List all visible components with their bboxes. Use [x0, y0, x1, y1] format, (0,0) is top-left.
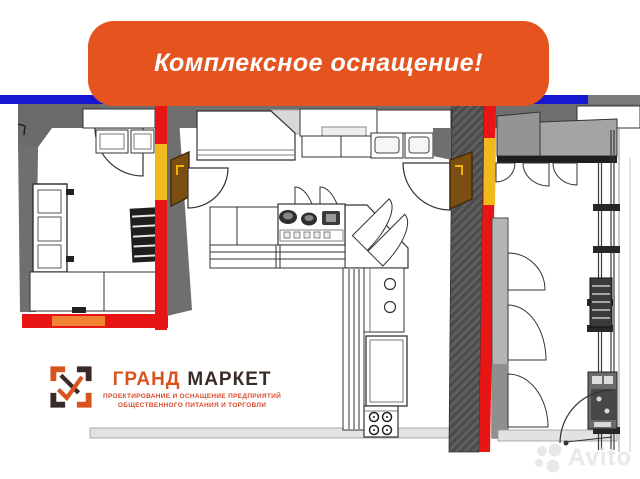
avito-logo-icon — [533, 441, 565, 475]
wall-counter — [83, 109, 155, 128]
wall-sinks — [371, 133, 433, 158]
ad-image: Комплексное оснащение! ГРАНДМАРКЕТ ПРОЕК… — [0, 0, 640, 479]
brand-word-1: ГРАНД — [113, 369, 181, 390]
shelf-door-arc — [508, 253, 545, 290]
wooden-door-left — [171, 152, 189, 206]
red-partition — [155, 104, 167, 330]
wooden-door-right — [450, 152, 472, 209]
brand-word-2: МАРКЕТ — [187, 369, 271, 390]
cabinet-door-arc — [496, 163, 515, 182]
door-arc-right — [403, 163, 450, 210]
display-cabinet — [33, 184, 74, 272]
shelf-rack — [130, 207, 160, 262]
counter-shelf-front — [210, 245, 345, 268]
four-burner-stove — [364, 406, 398, 437]
avito-watermark-text: Avito — [568, 444, 632, 472]
brand-tagline-line-1: ПРОЕКТИРОВАНИЕ И ОСНАЩЕНИЕ ПРЕДПРИЯТИЙ — [103, 393, 281, 402]
door-arc-left — [188, 168, 228, 208]
brand-logo-icon — [50, 364, 92, 410]
brand-tagline: ПРОЕКТИРОВАНИЕ И ОСНАЩЕНИЕ ПРЕДПРИЯТИЙ О… — [103, 393, 281, 411]
partition-wall-left — [155, 104, 192, 330]
prep-counter — [30, 272, 156, 311]
counter-left-block — [210, 207, 278, 245]
partition-wall-right — [449, 104, 496, 452]
shelf-door-arc — [508, 374, 548, 427]
gray-counter — [540, 119, 617, 156]
brand-logo-text: ГРАНДМАРКЕТ ПРОЕКТИРОВАНИЕ И ОСНАЩЕНИЕ П… — [103, 364, 281, 411]
tall-cabinet — [366, 336, 407, 406]
brand-logo: ГРАНДМАРКЕТ ПРОЕКТИРОВАНИЕ И ОСНАЩЕНИЕ П… — [50, 364, 281, 411]
brand-tagline-line-2: ОБЩЕСТВЕННОГО ПИТАНИЯ И ТОРГОВЛИ — [103, 402, 281, 411]
yellow-wall-section — [155, 144, 167, 200]
gray-counter — [497, 112, 540, 156]
brand-name: ГРАНДМАРКЕТ — [103, 370, 281, 389]
cabinet-door-arc — [523, 163, 549, 186]
promo-banner-text: Комплексное оснащение! — [154, 49, 483, 78]
yellow-wall-section — [484, 138, 497, 205]
cooktop — [278, 204, 345, 245]
floor-edge-band — [90, 428, 455, 438]
cabinet-door-arc — [553, 163, 577, 185]
avito-watermark: Avito — [533, 441, 632, 475]
storage-room — [492, 106, 640, 452]
orange-wall-segment — [52, 316, 105, 326]
shelf-door-arc — [508, 305, 546, 360]
promo-banner: Комплексное оснащение! — [88, 21, 549, 106]
